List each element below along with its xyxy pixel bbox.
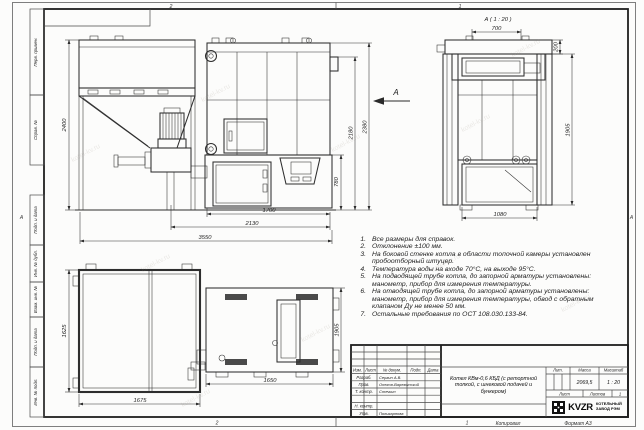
margin-label: Справ. № [33,120,38,140]
note-number: 1. [356,236,366,243]
detail-dimensions: А ( 1 : 20 ) 700 200 1905 1080 [462,17,575,221]
margin-column: Перв. примен. Справ. № Подп. и дата Инв.… [30,9,44,417]
zone-letter: А [19,215,24,221]
dim-label: 1080 [494,212,508,218]
plan-dimensions: 1625 1675 1650 1905 [62,270,345,407]
note-item: 7.Остальные требования по ОСТ 108.030.13… [356,311,608,318]
tb-role: Т. контр. [355,389,373,394]
dim-label: 1675 [134,398,148,404]
margin-label: Подп. и дата [33,206,38,234]
dim-label: 1650 [264,378,278,384]
kvzr-logo-mark-icon [552,401,565,414]
note-item: 3.На боковой стенке котла в области топо… [356,251,608,266]
dim-label: 200 [554,41,560,52]
note-text: Остальные требования по ОСТ 108.030.133-… [372,311,608,318]
document-title: Котел КВм-0,6 КБД (с ретортной топкой, с… [442,368,545,403]
note-item: 2.Отклонение ±100 мм. [356,243,608,250]
note-item: 6.На отводящей трубе котла, до запорной … [356,288,608,310]
view-direction-arrow: А [373,88,410,105]
tb-col-list: Лист [364,367,376,372]
tb-role: Утв. [359,411,369,416]
dim-label: 1625 [62,324,68,338]
tb-sheet-label: Лист [558,391,570,396]
note-item: 1.Все размеры для справок. [356,236,608,243]
drawing-svg: 2 1 2 1 А А Копировал Формат А3 Перв. пр… [0,0,644,430]
dim-label: 780 [334,176,340,186]
dim-label: 2400 [62,118,68,133]
dim-label: 2130 [245,221,260,227]
plan-view [73,264,339,392]
dim-label: 700 [492,26,502,32]
front-dimensions: 2400 780 2180 2380 1700 2130 3550 [62,40,372,244]
note-text: На подводящей трубе котла, до запорной а… [372,273,608,288]
tb-col-data: Дата [426,367,439,372]
tb-col-podp: Подп. [410,367,421,372]
drawing-sheet: 2 1 2 1 А А Копировал Формат А3 Перв. пр… [0,0,644,430]
dim-label: 3550 [199,235,213,241]
tb-role: Пров. [358,382,369,387]
dim-label: 1905 [335,323,341,337]
margin-label: Инв. № дубл. [33,250,38,277]
company-logo-text: KVZR [568,402,593,413]
zone-letter: А [629,215,634,221]
note-number: 2. [356,243,366,250]
tb-scale-label: Масштаб [604,367,624,372]
sheet-frame: 2 1 2 1 А А Копировал Формат А3 [13,3,636,427]
note-text: На боковой стенке котла в области топочн… [372,251,608,266]
tb-mass-value: 2069,5 [576,380,593,386]
note-number: 7. [356,311,366,318]
company-logo: KVZR КОТЕЛЬНЫЙ ЗАВОД РЭМ [547,398,627,416]
tb-sheets-value: 1 [619,391,621,396]
tb-role: Н. контр. [355,404,374,409]
zone-number: 2 [169,4,173,10]
note-number: 4. [356,266,366,273]
zone-number: 2 [215,421,219,427]
note-number: 6. [356,288,366,310]
tb-role: Разраб. [356,375,371,380]
tb-name: Стечкин [379,389,396,394]
tb-name: Онегов-Варежинский [379,382,420,387]
dim-label: 2380 [363,120,369,135]
tb-name: Поликарпова [379,411,404,416]
notes-list: 1.Все размеры для справок. 2.Отклонение … [356,236,608,318]
dim-label: 1905 [566,123,572,137]
company-name: КОТЕЛЬНЫЙ ЗАВОД РЭМ [596,402,622,412]
note-number: 3. [356,251,366,266]
margin-label: Инв. № подл. [33,378,38,405]
margin-label: Взам. инв. № [33,286,38,313]
copied-label: Копировал [496,421,521,427]
view-arrow-label: А [392,88,398,97]
note-item: 5.На подводящей трубе котла, до запорной… [356,273,608,288]
tb-sheets-label: Листов [589,391,606,396]
note-text: На отводящей трубе котла, до запорной ар… [372,288,608,310]
tb-lit-label: Лит. [552,367,563,372]
detail-view-title: А ( 1 : 20 ) [483,17,511,23]
note-number: 5. [356,273,366,288]
margin-label: Перв. примен. [33,37,38,66]
dim-label: 2180 [349,126,355,141]
format-label: Формат А3 [564,421,592,427]
margin-label: Подп. и дата [33,328,38,356]
dim-label: 1700 [263,208,277,214]
tb-col-doc: № докум. [383,367,401,372]
note-text: Отклонение ±100 мм. [372,243,608,250]
note-text: Все размеры для справок. [372,236,608,243]
company-name-line2: ЗАВОД РЭМ [596,407,622,412]
tb-col-izm: Изм. [353,367,362,372]
tb-scale-value: 1 : 20 [607,380,620,386]
tb-name: Сергин А.В. [379,375,401,380]
tb-mass-label: Масса [578,367,591,372]
zone-number: 1 [459,4,462,10]
zone-number: 1 [466,421,469,427]
front-view [75,36,338,210]
detail-view [437,36,552,210]
